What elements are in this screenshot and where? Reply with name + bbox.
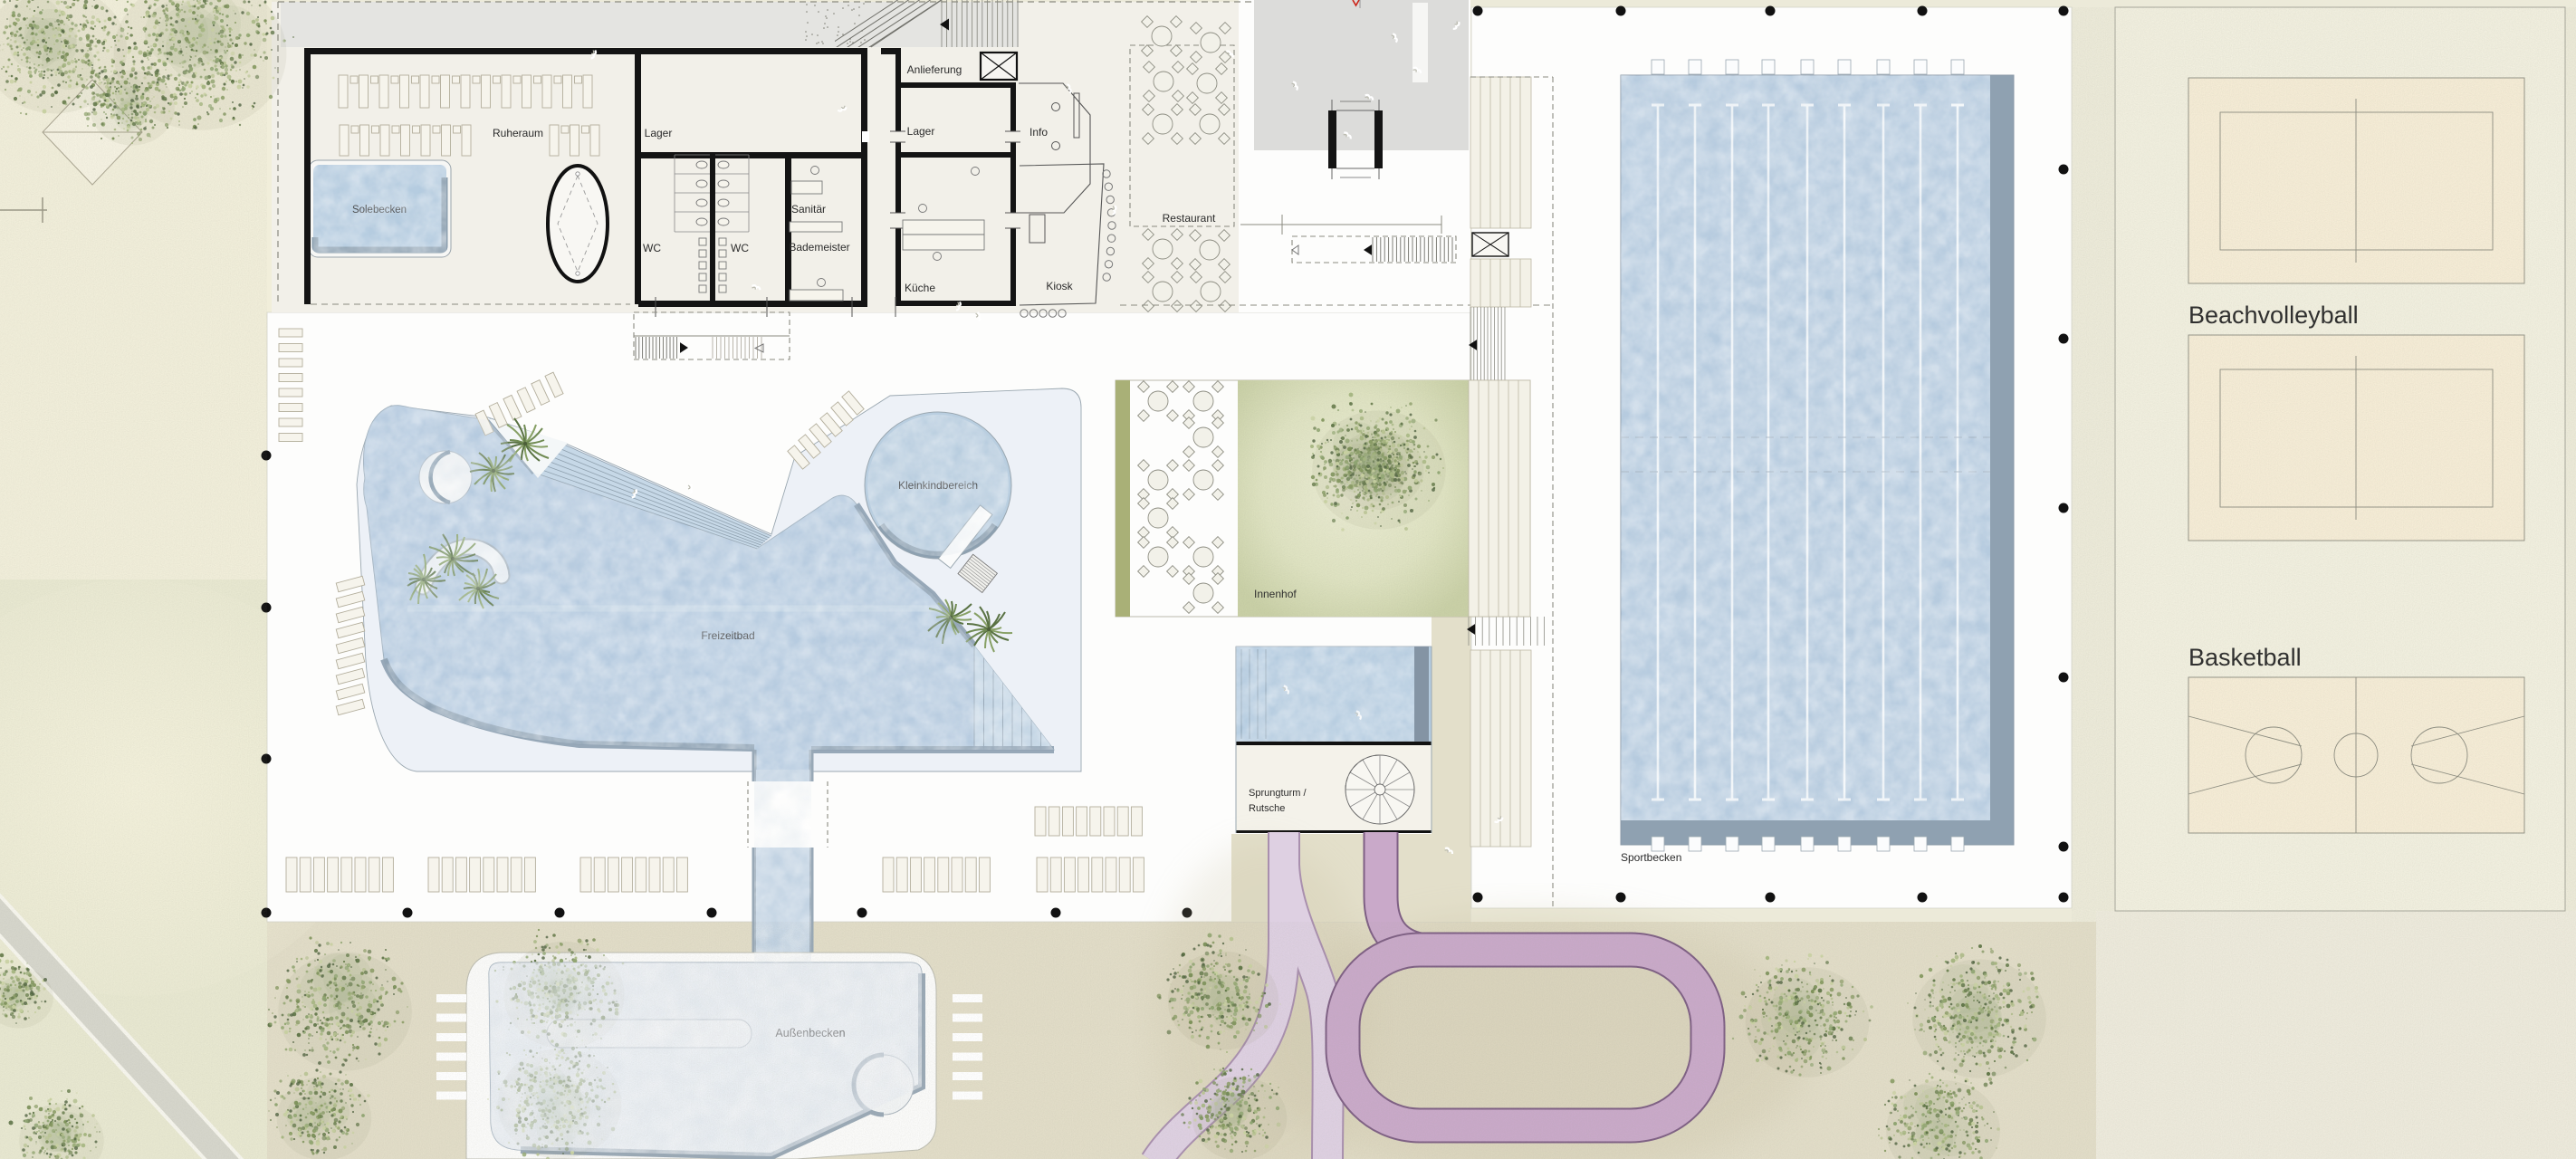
svg-text:WC: WC [731,242,749,254]
svg-text:Kiosk: Kiosk [1046,280,1073,292]
svg-text:Lager: Lager [645,127,673,139]
svg-text:Sportbecken: Sportbecken [1621,851,1681,864]
svg-text:Info: Info [1029,126,1048,139]
svg-text:Sanitär: Sanitär [791,203,826,216]
svg-text:Bademeister: Bademeister [789,241,849,254]
svg-text:Sprungturm /: Sprungturm / [1249,788,1307,799]
svg-text:Lager: Lager [907,125,935,138]
svg-text:Ruheraum: Ruheraum [493,127,543,139]
svg-text:WC: WC [643,242,661,254]
svg-text:Rutsche: Rutsche [1249,803,1285,814]
svg-text:Anlieferung: Anlieferung [907,63,962,76]
svg-text:Küche: Küche [905,282,935,294]
svg-text:Restaurant: Restaurant [1163,212,1216,225]
